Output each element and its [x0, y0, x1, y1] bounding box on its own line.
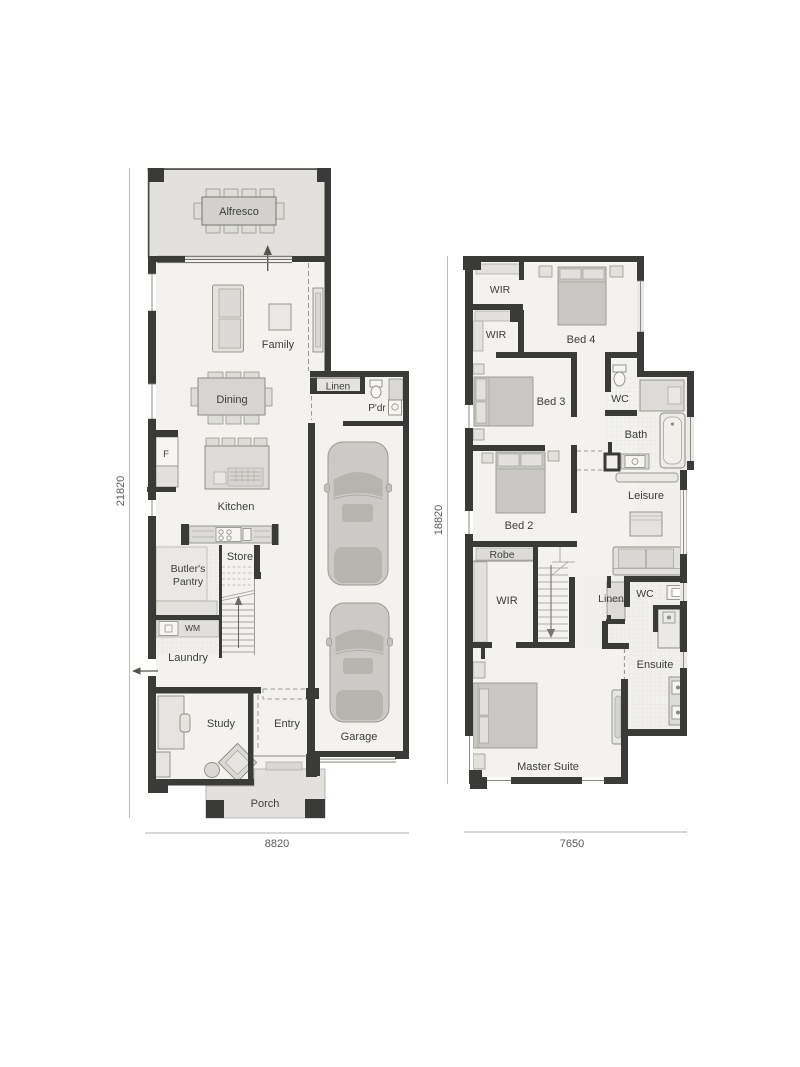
svg-text:7650: 7650 [560, 838, 584, 850]
svg-text:WIR: WIR [496, 595, 517, 607]
svg-text:WC: WC [611, 393, 629, 405]
svg-text:WM: WM [185, 623, 200, 633]
svg-text:Porch: Porch [251, 798, 280, 810]
svg-text:Ensuite: Ensuite [637, 659, 674, 671]
svg-text:WIR: WIR [490, 284, 511, 296]
svg-text:Butler's: Butler's [171, 563, 206, 575]
svg-text:Dining: Dining [216, 394, 247, 406]
svg-text:F: F [163, 449, 169, 460]
svg-text:Linen: Linen [598, 593, 624, 605]
svg-text:21820: 21820 [115, 476, 127, 507]
svg-text:Pantry: Pantry [173, 576, 204, 588]
svg-text:Store: Store [227, 551, 253, 563]
svg-text:Study: Study [207, 718, 236, 730]
svg-text:Bed 3: Bed 3 [537, 396, 566, 408]
svg-text:Bath: Bath [625, 429, 648, 441]
svg-text:WIR: WIR [486, 329, 507, 341]
svg-text:Robe: Robe [489, 549, 514, 561]
svg-text:Leisure: Leisure [628, 490, 664, 502]
svg-text:Entry: Entry [274, 718, 300, 730]
svg-text:WC: WC [636, 588, 654, 600]
svg-text:Laundry: Laundry [168, 652, 208, 664]
svg-text:Master Suite: Master Suite [517, 761, 579, 773]
svg-text:Bed 4: Bed 4 [567, 334, 596, 346]
svg-text:Family: Family [262, 339, 295, 351]
svg-text:Kitchen: Kitchen [218, 501, 255, 513]
svg-text:Bed 2: Bed 2 [505, 520, 534, 532]
svg-text:18820: 18820 [433, 505, 445, 536]
svg-text:8820: 8820 [265, 838, 289, 850]
svg-text:Linen: Linen [326, 382, 350, 393]
svg-text:Alfresco: Alfresco [219, 206, 259, 218]
svg-text:Garage: Garage [341, 731, 378, 743]
svg-text:P'dr: P'dr [368, 403, 386, 414]
